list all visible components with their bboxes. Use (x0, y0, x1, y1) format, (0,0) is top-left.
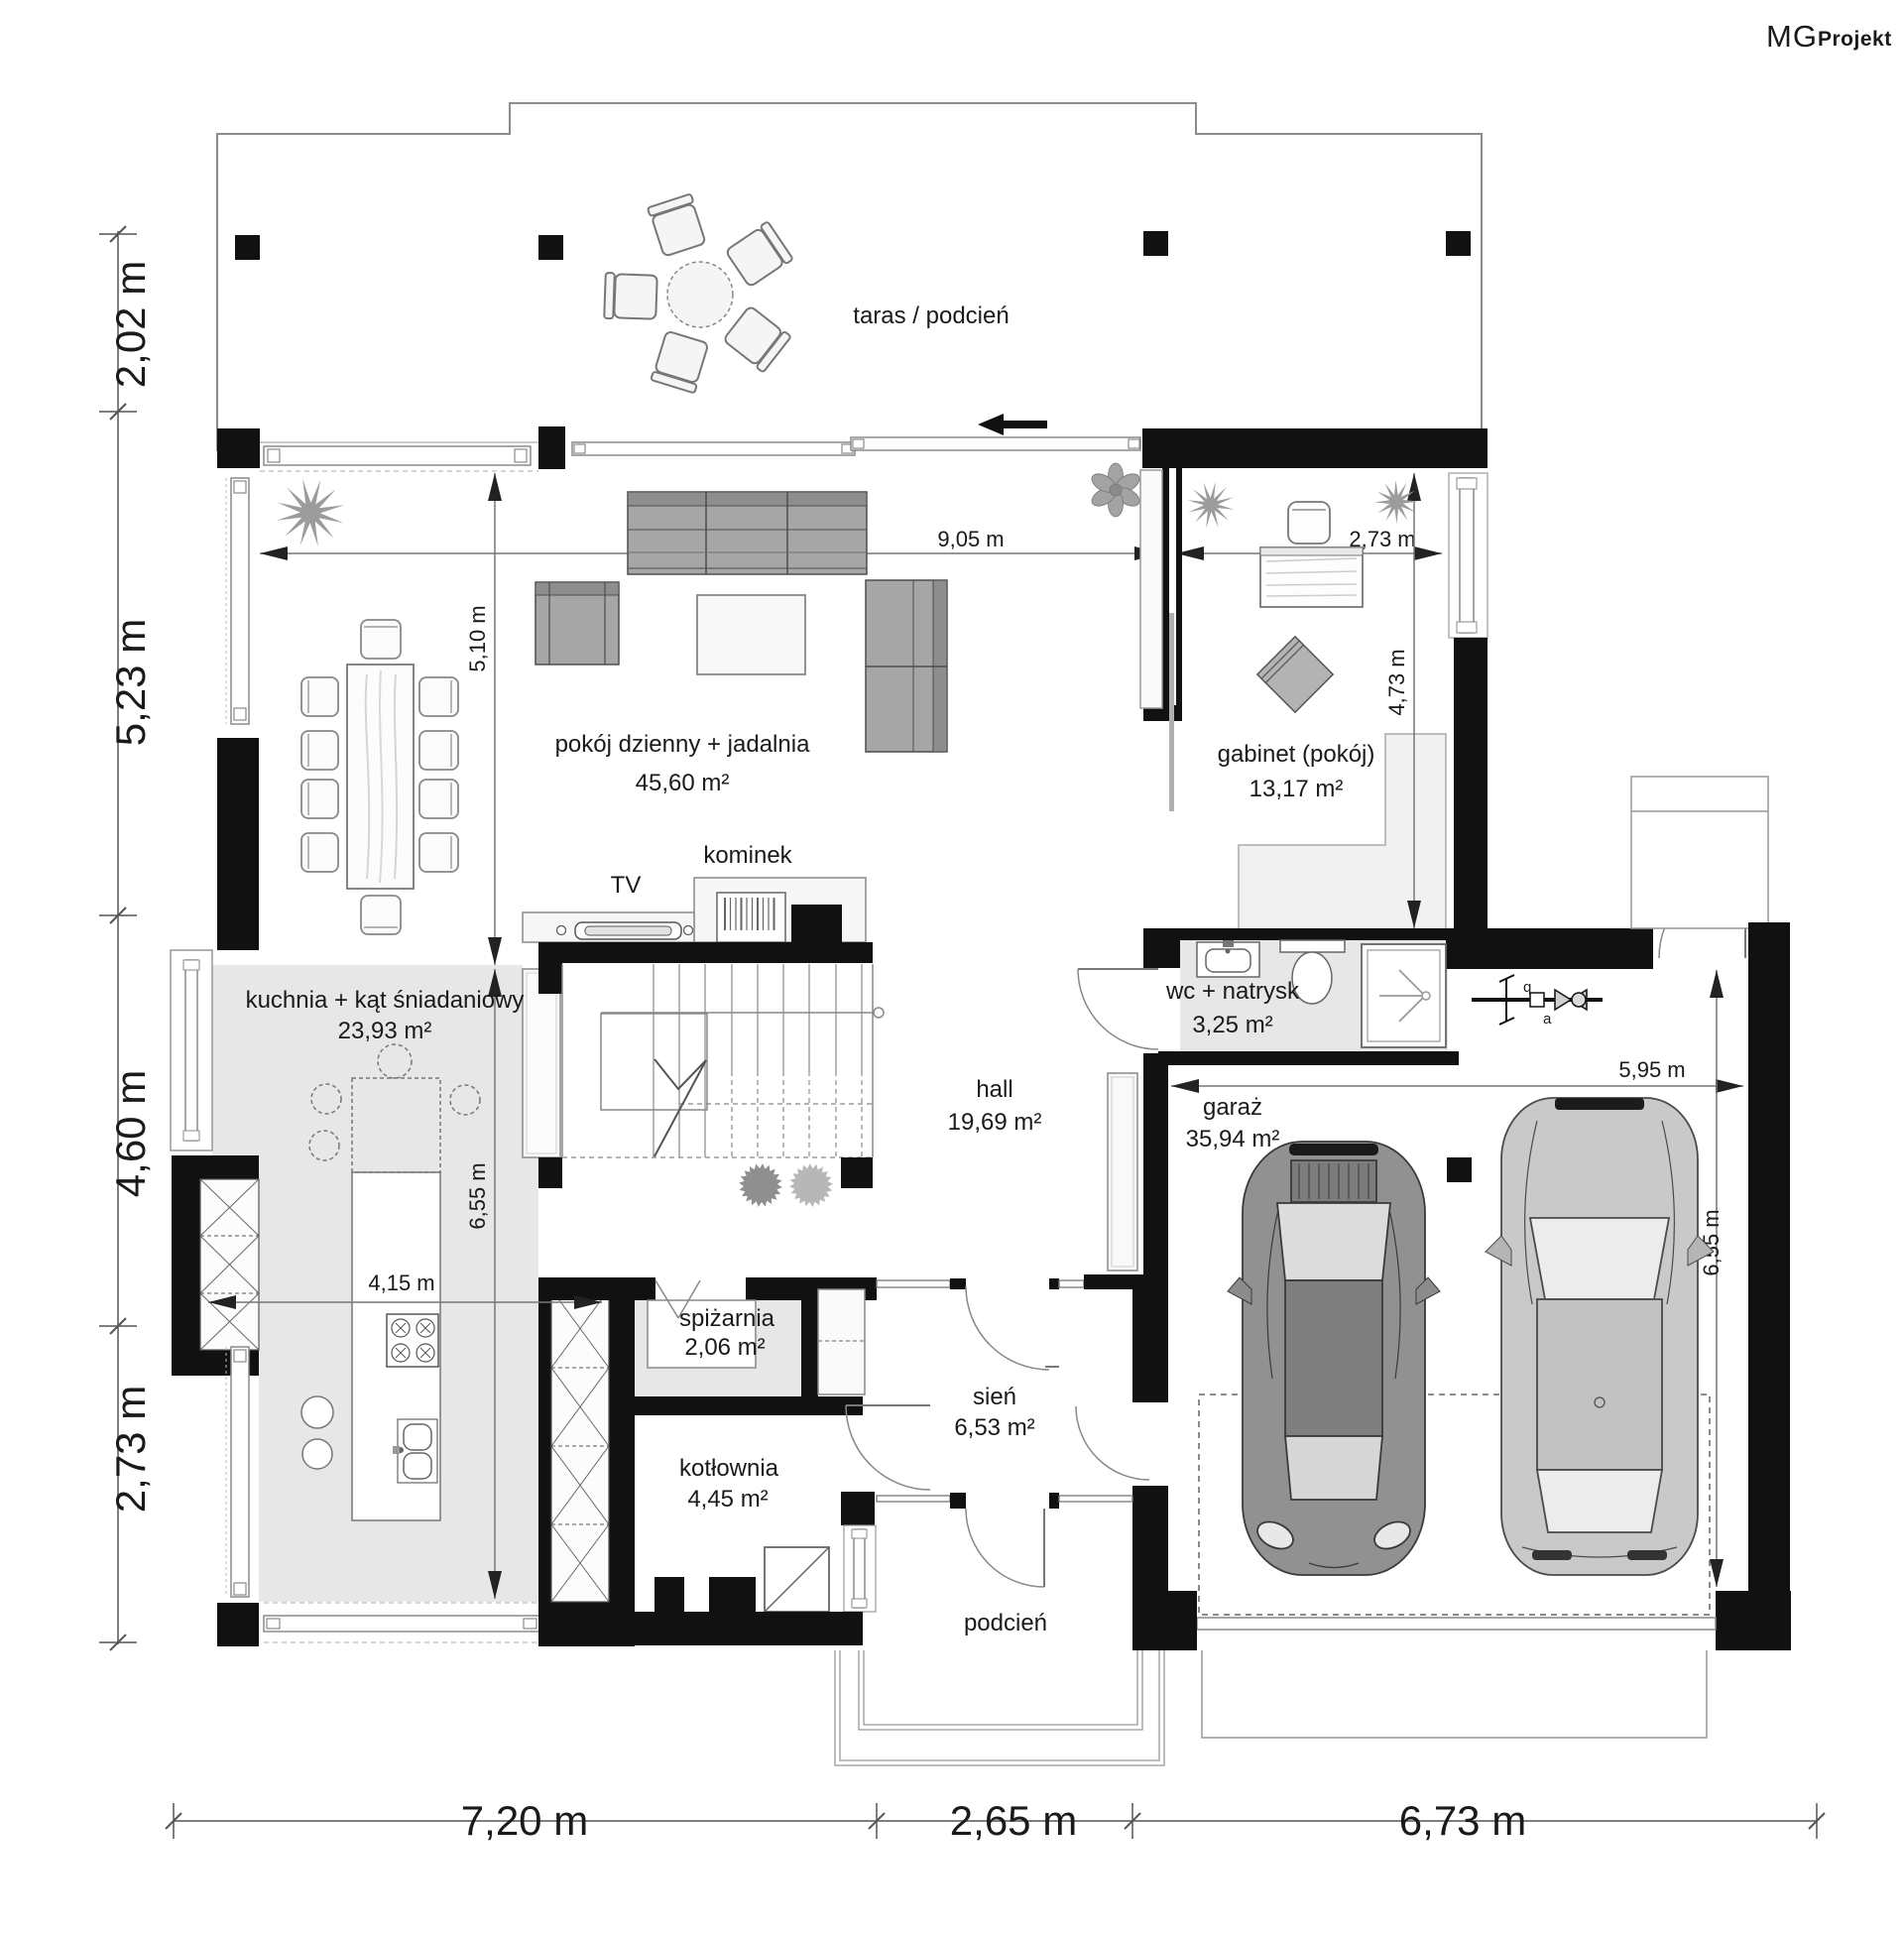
svg-text:5,10 m: 5,10 m (465, 605, 490, 671)
svg-text:4,60 m: 4,60 m (107, 1070, 154, 1197)
svg-text:5,95 m: 5,95 m (1618, 1057, 1685, 1082)
svg-text:2,02 m: 2,02 m (107, 261, 154, 388)
svg-text:pokój dzienny + jadalnia: pokój dzienny + jadalnia (555, 731, 811, 758)
svg-text:2,73 m: 2,73 m (107, 1386, 154, 1513)
svg-text:taras / podcień: taras / podcień (853, 303, 1009, 329)
svg-text:MG: MG (1766, 19, 1818, 54)
svg-text:9,05 m: 9,05 m (937, 527, 1004, 551)
svg-text:podcień: podcień (964, 1610, 1047, 1636)
svg-text:6,53 m²: 6,53 m² (954, 1414, 1034, 1441)
svg-text:4,15 m: 4,15 m (368, 1271, 434, 1295)
svg-text:6,55 m: 6,55 m (465, 1162, 490, 1229)
svg-text:4,73 m: 4,73 m (1384, 649, 1409, 715)
svg-text:q: q (1523, 979, 1531, 996)
svg-text:13,17 m²: 13,17 m² (1249, 776, 1344, 802)
svg-text:wc + natrysk: wc + natrysk (1165, 978, 1300, 1005)
svg-text:2,06 m²: 2,06 m² (684, 1334, 765, 1361)
svg-text:6,73 m: 6,73 m (1399, 1797, 1526, 1844)
svg-text:spiżarnia: spiżarnia (679, 1305, 775, 1332)
svg-text:35,94 m²: 35,94 m² (1186, 1126, 1280, 1152)
svg-text:kominek: kominek (703, 842, 792, 869)
svg-text:4,45 m²: 4,45 m² (687, 1486, 768, 1513)
svg-text:2,65 m: 2,65 m (950, 1797, 1077, 1844)
svg-text:kotłownia: kotłownia (679, 1455, 779, 1482)
svg-text:TV: TV (611, 872, 642, 899)
svg-text:Projekt: Projekt (1818, 28, 1892, 51)
svg-text:sień: sień (973, 1384, 1016, 1410)
svg-text:garaż: garaż (1203, 1094, 1262, 1121)
svg-text:hall: hall (976, 1076, 1012, 1103)
svg-text:19,69 m²: 19,69 m² (948, 1109, 1042, 1136)
svg-text:7,20 m: 7,20 m (461, 1797, 588, 1844)
svg-text:5,23 m: 5,23 m (107, 619, 154, 746)
svg-text:3,25 m²: 3,25 m² (1192, 1012, 1272, 1038)
svg-text:a: a (1543, 1011, 1552, 1028)
svg-text:23,93 m²: 23,93 m² (338, 1018, 432, 1044)
svg-text:gabinet (pokój): gabinet (pokój) (1218, 741, 1375, 768)
svg-text:kuchnia + kąt śniadaniowy: kuchnia + kąt śniadaniowy (246, 987, 525, 1014)
svg-text:45,60 m²: 45,60 m² (636, 770, 730, 796)
